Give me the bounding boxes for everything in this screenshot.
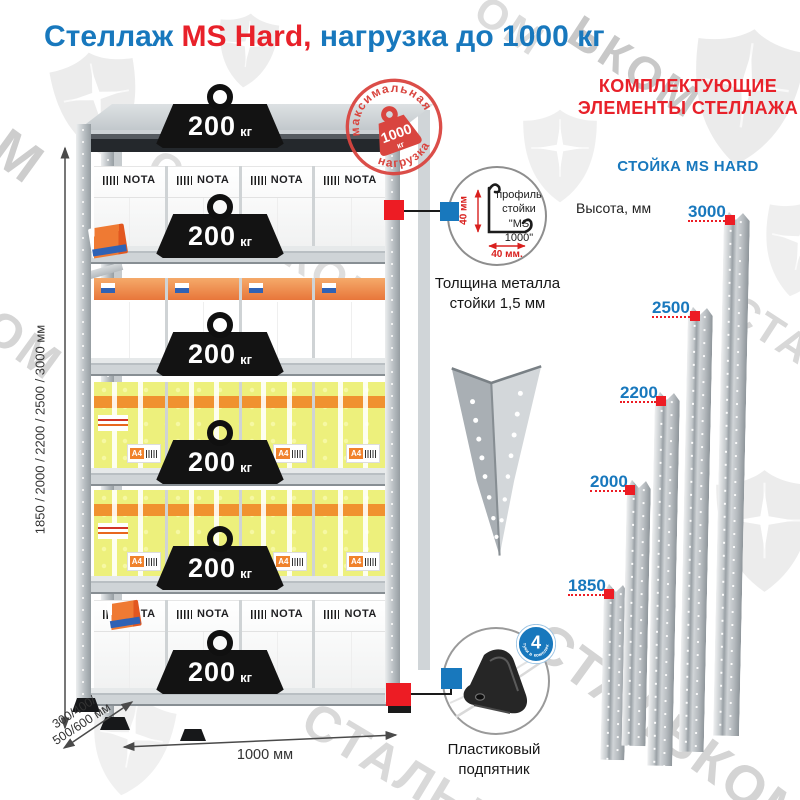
box-label — [101, 283, 115, 293]
barcode-icon — [251, 176, 266, 185]
weight-value: 200 — [188, 657, 236, 688]
foot-caption-line2: подпятник — [458, 761, 529, 778]
components-heading-line2: ЭЛЕМЕНТЫ СТЕЛЛАЖА — [578, 98, 798, 118]
shelf-load-weight-icon: 200кг — [155, 420, 285, 484]
components-heading-line1: КОМПЛЕКТУЮЩИЕ — [599, 76, 777, 96]
components-heading: КОМПЛЕКТУЮЩИЕ ЭЛЕМЕНТЫ СТЕЛЛАЖА — [566, 76, 800, 120]
weight-value: 200 — [188, 553, 236, 584]
post-height-callout-1850: 1850 — [568, 576, 606, 596]
nota-logo: NOTA — [344, 608, 376, 620]
post-section-heading: СТОЙКА MS HARD — [566, 158, 800, 175]
infographic-canvas: ЬКОМ КОМ СТАЛЬКОМ СТАЛЬКОМ СТА СТАЛЬКОМ … — [0, 0, 800, 800]
shelf-load-weight-icon: 200кг — [155, 312, 285, 376]
weight-value: 200 — [188, 447, 236, 478]
barcode-icon — [103, 176, 118, 185]
nota-logo: NOTA — [271, 608, 303, 620]
post-height-label: 2200 — [620, 383, 658, 403]
post-marker — [625, 485, 635, 495]
post-profile-callout-circle: 40 мм 40 мм. профиль стойки "MS 1000" — [447, 166, 547, 266]
foot-callout-marker — [386, 683, 411, 706]
weight-ring-icon — [207, 194, 233, 220]
post-marker — [725, 215, 735, 225]
title-accent: MS Hard, — [181, 20, 311, 53]
post-height-callout-3000: 3000 — [688, 202, 726, 222]
rack-foot — [388, 706, 411, 713]
barcode-icon — [365, 558, 377, 566]
weight-value: 200 — [188, 339, 236, 370]
post-height-callout-2200: 2200 — [620, 383, 658, 403]
post-height-label: 3000 — [688, 202, 726, 222]
box-label — [249, 283, 263, 293]
shelf-load-weight-icon: 200кг — [155, 630, 285, 694]
a4-tag: A4 — [130, 448, 144, 459]
a4-label: A4 — [346, 444, 380, 463]
shield-logo-watermark — [748, 190, 800, 306]
nota-logo: NOTA — [197, 608, 229, 620]
shelf-load-weight-icon: 200кг — [155, 526, 285, 590]
a4-tag: A4 — [349, 556, 363, 567]
yellow-box: A4 — [315, 490, 386, 576]
note-line1: Толщина металла — [435, 275, 560, 292]
title-tail: нагрузка до 1000 кг — [320, 20, 605, 53]
weight-unit: кг — [240, 566, 252, 581]
barcode-icon — [292, 450, 304, 458]
nota-logo: NOTA — [271, 174, 303, 186]
post-height-callout-2000: 2000 — [590, 472, 628, 492]
barcode-icon — [324, 176, 339, 185]
plastic-foot-caption: Пластиковый подпятник — [433, 740, 555, 781]
profile-caption: профиль стойки "MS 1000" — [495, 188, 543, 245]
weight-ring-icon — [207, 312, 233, 338]
post-height-label: 1850 — [568, 576, 606, 596]
box-label — [175, 283, 189, 293]
barcode-icon — [251, 610, 266, 619]
post-height-callout-2500: 2500 — [652, 298, 690, 318]
profile-caption-line3: "MS 1000" — [505, 218, 533, 244]
weight-unit: кг — [240, 124, 252, 139]
a4-label: A4 — [346, 552, 380, 571]
rack-front-left-post — [76, 124, 91, 702]
rack-back-post — [418, 110, 430, 670]
weight-unit: кг — [240, 460, 252, 475]
paper-label — [98, 415, 128, 431]
post-marker — [656, 396, 666, 406]
post-height-label: 2500 — [652, 298, 690, 318]
weight-unit: кг — [240, 234, 252, 249]
title-lead: Стеллаж — [44, 20, 173, 53]
post-2500 — [679, 307, 713, 752]
weight-value: 200 — [188, 111, 236, 142]
profile-callout-marker — [440, 202, 459, 221]
rack-foot — [180, 729, 206, 741]
corner-post-render — [445, 358, 550, 566]
barcode-icon — [292, 558, 304, 566]
badge-count: 4 — [531, 633, 542, 653]
rack-front-right-post — [385, 138, 400, 702]
weight-ring-icon — [207, 84, 233, 110]
shelf-load-weight-icon: 200кг — [155, 194, 285, 258]
profile-caption-line2: стойки — [502, 203, 536, 215]
profile-dim-horizontal: 40 мм. — [489, 249, 525, 260]
a4-tag: A4 — [130, 556, 144, 567]
page-title: Стеллаж MS Hard, нагрузка до 1000 кг — [44, 20, 605, 54]
barcode-icon — [365, 450, 377, 458]
foot-caption-line1: Пластиковый — [448, 741, 541, 758]
nota-logo: NOTA — [197, 174, 229, 186]
barcode-icon — [177, 610, 192, 619]
weight-ring-icon — [207, 526, 233, 552]
paper-brand-sticker — [106, 600, 142, 631]
box-label — [322, 283, 336, 293]
nota-logo: NOTA — [123, 174, 155, 186]
shelf-load-weight-icon: 200кг — [155, 84, 285, 148]
metal-thickness-note: Толщина металла стойки 1,5 мм — [425, 274, 570, 315]
barcode-icon — [177, 176, 192, 185]
barcode-icon — [324, 610, 339, 619]
paper-label — [98, 523, 128, 539]
post-callout-marker — [384, 200, 404, 220]
note-line2: стойки 1,5 мм — [450, 295, 546, 312]
paper-brand-sticker — [88, 223, 128, 258]
post-marker — [604, 589, 614, 599]
post-3000 — [713, 212, 750, 736]
weight-ring-icon — [207, 420, 233, 446]
a4-tag: A4 — [349, 448, 363, 459]
width-dimension-label: 1000 мм — [210, 747, 320, 763]
post-height-label: 2000 — [590, 472, 628, 492]
foot-callout-marker-2 — [441, 668, 462, 689]
weight-value: 200 — [188, 221, 236, 252]
profile-dim-vertical: 40 мм — [459, 189, 470, 233]
height-dimension-label: 1850 / 2000 / 2200 / 2500 / 3000 мм — [33, 258, 48, 602]
quantity-badge: 4 штуки в комплекте — [516, 624, 556, 664]
nota-box: NOTA — [315, 600, 386, 688]
weight-unit: кг — [240, 670, 252, 685]
profile-caption-line1: профиль — [496, 189, 542, 201]
weight-unit: кг — [240, 352, 252, 367]
orange-top-box — [315, 278, 386, 358]
weight-ring-icon — [207, 630, 233, 656]
post-marker — [690, 311, 700, 321]
yellow-box: A4 — [315, 382, 386, 468]
height-axis-label: Высота, мм — [576, 200, 651, 216]
